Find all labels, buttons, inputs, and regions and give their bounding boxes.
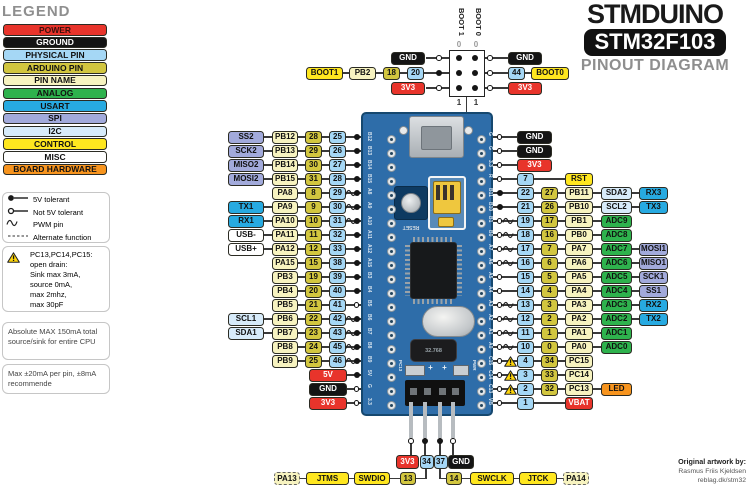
- legend-swatch-spi: SPI: [3, 113, 107, 125]
- arduino-pin: 29: [305, 145, 322, 158]
- pin-hole: [477, 135, 486, 144]
- pin-hole: [477, 345, 486, 354]
- pin-name-PB12: PB12: [272, 131, 298, 144]
- silkscreen-label: C15: [487, 356, 492, 371]
- pin-hole-center: [480, 362, 483, 365]
- pin-hole-center: [390, 390, 393, 393]
- pin-name-PA13: PA13: [274, 472, 300, 485]
- credit-line: Original artwork by:: [626, 457, 746, 467]
- silkscreen-label: A15: [366, 258, 371, 273]
- physical-pin: 12: [517, 313, 534, 326]
- power-pin-GND: GND: [391, 52, 425, 65]
- silkscreen-label: A12: [366, 244, 371, 259]
- silkscreen-label: B0: [487, 230, 492, 245]
- led-silkscreen-label: PWR: [469, 360, 477, 378]
- silkscreen-label: G: [487, 146, 492, 161]
- pin-hole-center: [390, 208, 393, 211]
- power-pin-3V3: 3V3: [396, 455, 419, 469]
- physical-pin: 27: [329, 159, 346, 172]
- arduino-pin: 24: [305, 341, 322, 354]
- brand-title: STMDUINO: [560, 1, 750, 28]
- legend-swatch-pinname: PIN NAME: [3, 75, 107, 87]
- pin-hole: [387, 359, 396, 368]
- physical-pin: 14: [517, 285, 534, 298]
- pin-hole: [387, 177, 396, 186]
- pin-hole-center: [390, 222, 393, 225]
- pin-name-PB2: PB2: [349, 67, 376, 80]
- pin-func-TX2: TX2: [639, 313, 668, 326]
- pin-name-PA15: PA15: [272, 257, 298, 270]
- physical-pin: 32: [329, 229, 346, 242]
- legend-swatch-hardware: BOARD HARDWARE: [3, 164, 107, 176]
- pin-name-PB11: PB11: [565, 187, 593, 200]
- pin-hole-center: [390, 264, 393, 267]
- swd-header-pin: [439, 388, 446, 395]
- silkscreen-label: G: [487, 132, 492, 147]
- silkscreen-label: B5: [366, 300, 371, 315]
- pin-func-ADC7: ADC7: [601, 243, 632, 256]
- solder-dot-hollow: [497, 386, 503, 392]
- silkscreen-label: B15: [366, 174, 371, 189]
- header-pin-leg: [409, 402, 413, 438]
- pin-func-SCL2: SCL2: [601, 201, 632, 214]
- boot-jumper-cap: [438, 217, 454, 227]
- pin-hole-center: [390, 306, 393, 309]
- physical-pin: 3: [517, 369, 534, 382]
- hollow-tolerance-icon: [6, 206, 30, 216]
- pin-hole-center: [390, 362, 393, 365]
- dashed-tolerance-icon: [6, 231, 30, 241]
- solder-dot-hollow: [436, 55, 442, 61]
- credit-line: reblag.dk/stm32: [626, 476, 746, 485]
- legend-swatch-misc: MISC: [3, 151, 107, 163]
- legend-heading: LEGEND: [2, 3, 71, 20]
- pin-hole-center: [390, 250, 393, 253]
- physical-pin: 21: [517, 201, 534, 214]
- physical-pin: 17: [517, 243, 534, 256]
- arduino-pin: 30: [305, 159, 322, 172]
- physical-pin: 38: [329, 257, 346, 270]
- pin-name-PA3: PA3: [565, 299, 593, 312]
- swd-header-pin: [410, 388, 417, 395]
- pwm-icon: [502, 314, 514, 324]
- pin-hole-center: [390, 334, 393, 337]
- pwm-icon: [502, 342, 514, 352]
- solder-dot-filled: [354, 344, 360, 350]
- legend-warning-line: open drain:: [30, 260, 106, 270]
- pin-hole: [387, 205, 396, 214]
- jumper-pin: [443, 185, 447, 200]
- solder-dot-hollow: [408, 438, 414, 444]
- legend-swatch-arduino: ARDUINO PIN: [3, 62, 107, 74]
- pin-hole: [387, 303, 396, 312]
- arduino-pin: 22: [305, 313, 322, 326]
- pin-func-TX3: TX3: [639, 201, 668, 214]
- pin-hole: [387, 345, 396, 354]
- pin-name-PB4: PB4: [272, 285, 298, 298]
- arduino-pin: 11: [305, 229, 322, 242]
- pin-hole: [477, 359, 486, 368]
- pin-hole: [477, 303, 486, 312]
- legend-swatch-analog: ANALOG: [3, 88, 107, 100]
- pin-hole: [387, 191, 396, 200]
- legend-swatch-ground: GROUND: [3, 37, 107, 49]
- physical-pin: 34: [420, 455, 434, 469]
- arduino-pin: 13: [400, 472, 416, 485]
- legend-symbol-label: Alternate function: [33, 233, 107, 243]
- pin-hole-center: [480, 250, 483, 253]
- jumper-bottom-value: 1: [454, 98, 464, 107]
- legend-swatch-power: POWER: [3, 24, 107, 36]
- power-pin-3V3: 3V3: [508, 82, 542, 95]
- physical-pin: 7: [517, 173, 534, 186]
- jumper-top-value: 0: [471, 40, 481, 49]
- pin-func-ADC4: ADC4: [601, 285, 632, 298]
- pin-hole: [477, 163, 486, 172]
- mcu-chip: [410, 242, 457, 299]
- silkscreen-label: B12: [366, 132, 371, 147]
- solder-dot-hollow: [487, 55, 493, 61]
- pin-hole-center: [480, 292, 483, 295]
- pin-func-USB-: USB-: [228, 229, 264, 242]
- physical-pin: 10: [517, 341, 534, 354]
- jtag-pin-JTMS: JTMS: [306, 472, 349, 485]
- credit-line: Rasmus Friis Kjeldsen: [626, 467, 746, 476]
- pin-name-PB7: PB7: [272, 327, 298, 340]
- pin-hole: [387, 387, 396, 396]
- solder-dot-filled: [354, 218, 360, 224]
- arduino-pin: 7: [541, 243, 558, 256]
- usb-mount-pad: [464, 126, 473, 135]
- pin-hole-center: [480, 152, 483, 155]
- legend-warning-line: source 0mA,: [30, 280, 106, 290]
- arduino-pin: 32: [541, 383, 558, 396]
- pin-hole: [387, 373, 396, 382]
- physical-pin: 13: [517, 299, 534, 312]
- arduino-pin: 15: [305, 257, 322, 270]
- pin-hole: [477, 233, 486, 242]
- silkscreen-label: C14: [487, 370, 492, 385]
- solder-dot-hollow: [497, 372, 503, 378]
- legend-symbol-label: 5V tolerant: [33, 195, 107, 205]
- silkscreen-label: A9: [366, 202, 371, 217]
- physical-pin: 39: [329, 271, 346, 284]
- silkscreen-label: A5: [487, 272, 492, 287]
- physical-pin: 37: [434, 455, 448, 469]
- header-pin-leg: [451, 402, 455, 438]
- pin-hole: [387, 275, 396, 284]
- jumper-pin-dot: [456, 55, 462, 61]
- pin-name-PB10: PB10: [565, 201, 593, 214]
- arduino-pin: 23: [305, 327, 322, 340]
- pin-hole-center: [390, 152, 393, 155]
- power-pin-3V3: 3V3: [309, 397, 347, 410]
- pin-func-RX2: RX2: [639, 299, 668, 312]
- silkscreen-label: B14: [366, 160, 371, 175]
- silkscreen-label: B11: [487, 188, 492, 203]
- arduino-pin: 14: [446, 472, 462, 485]
- physical-pin: 40: [329, 285, 346, 298]
- pin-hole-center: [480, 138, 483, 141]
- pin-hole-center: [390, 292, 393, 295]
- pin-func-TX1: TX1: [228, 201, 264, 214]
- pin-hole-center: [390, 194, 393, 197]
- pin-name-PA12: PA12: [272, 243, 298, 256]
- physical-pin: 1: [517, 397, 534, 410]
- arduino-pin: 34: [541, 355, 558, 368]
- pin-hole-center: [480, 334, 483, 337]
- solder-dot-filled: [354, 148, 360, 154]
- silkscreen-label: B3: [366, 272, 371, 287]
- wire: [416, 478, 427, 479]
- silkscreen-label: 5V: [366, 370, 371, 385]
- solder-dot-filled: [422, 438, 428, 444]
- silkscreen-label: G: [366, 384, 371, 399]
- solder-dot-filled: [354, 162, 360, 168]
- pwm-icon: [502, 244, 514, 254]
- legend-symbol-label: Not 5V tolerant: [33, 208, 107, 218]
- pin-func-USB+: USB+: [228, 243, 264, 256]
- physical-pin: 25: [329, 131, 346, 144]
- pin-func-SCK1: SCK1: [639, 271, 668, 284]
- pin-func-SCL1: SCL1: [228, 313, 264, 326]
- pwm-icon: [502, 258, 514, 268]
- silkscreen-label: A3: [487, 300, 492, 315]
- jtag-pin-SWCLK: SWCLK: [470, 472, 514, 485]
- solder-dot-filled: [354, 330, 360, 336]
- mcu-pin-strip: [457, 245, 462, 296]
- silkscreen-label: A1: [487, 328, 492, 343]
- solder-dot-filled: [354, 246, 360, 252]
- solder-dot-hollow: [436, 85, 442, 91]
- physical-pin: 45: [329, 341, 346, 354]
- pin-hole: [387, 135, 396, 144]
- pin-func-ADC9: ADC9: [601, 215, 632, 228]
- pin-hole-center: [390, 278, 393, 281]
- legend-warning-line: max 2mhz,: [30, 290, 106, 300]
- pin-hole-center: [480, 194, 483, 197]
- silkscreen-label: B10: [487, 202, 492, 217]
- jumper-pin-dot: [456, 70, 462, 76]
- pin-hole: [387, 219, 396, 228]
- pin-hole-center: [480, 390, 483, 393]
- pin-func-RX3: RX3: [639, 187, 668, 200]
- physical-pin: 43: [329, 327, 346, 340]
- legend-warning-line: max 30pF: [30, 300, 106, 310]
- arduino-pin: 20: [305, 285, 322, 298]
- pin-name-PA11: PA11: [272, 229, 298, 242]
- pin-hole: [477, 261, 486, 270]
- pin-func-ADC3: ADC3: [601, 299, 632, 312]
- pin-name-PB14: PB14: [272, 159, 298, 172]
- pin-hole: [387, 247, 396, 256]
- pin-name-PA5: PA5: [565, 271, 593, 284]
- solder-dot-hollow: [497, 162, 503, 168]
- pwm-icon: [502, 216, 514, 226]
- artwork-credit: Original artwork by: Rasmus Friis Kjelds…: [626, 457, 746, 485]
- pwm-icon: [502, 328, 514, 338]
- pin-hole-center: [480, 180, 483, 183]
- arduino-pin: 31: [305, 173, 322, 186]
- open-drain-warning-icon: [504, 384, 517, 395]
- pin-hole-center: [480, 306, 483, 309]
- pin-name-PB13: PB13: [272, 145, 298, 158]
- arduino-pin: 28: [305, 131, 322, 144]
- arduino-pin: 8: [305, 187, 322, 200]
- solder-dot-hollow: [497, 274, 503, 280]
- jtag-pin-JTCK: JTCK: [519, 472, 557, 485]
- pin-name-PA9: PA9: [272, 201, 298, 214]
- pin-hole-center: [390, 180, 393, 183]
- pin-hole: [387, 233, 396, 242]
- legend-swatch-physical: PHYSICAL PIN: [3, 49, 107, 61]
- pin-name-PB15: PB15: [272, 173, 298, 186]
- pin-hole-center: [480, 404, 483, 407]
- pin-name-PB9: PB9: [272, 355, 298, 368]
- solder-dot-filled: [354, 288, 360, 294]
- silkscreen-label: A4: [487, 286, 492, 301]
- pin-hole: [477, 387, 486, 396]
- pin-hole: [387, 331, 396, 340]
- arduino-pin: 16: [541, 229, 558, 242]
- power-pin-3V3: 3V3: [391, 82, 425, 95]
- solder-dot-filled: [354, 232, 360, 238]
- pin-func-ADC2: ADC2: [601, 313, 632, 326]
- arduino-pin: 18: [383, 67, 400, 80]
- silkscreen-label: B8: [366, 342, 371, 357]
- pin-hole-center: [480, 264, 483, 267]
- arduino-pin: 25: [305, 355, 322, 368]
- silkscreen-label: 3.3: [487, 160, 492, 175]
- header-pin-leg: [423, 402, 427, 438]
- header-pin-leg: [438, 402, 442, 438]
- open-drain-warning-icon: [504, 356, 517, 367]
- usb-mount-pad: [399, 126, 408, 135]
- pin-hole: [387, 401, 396, 410]
- arduino-pin: 9: [305, 201, 322, 214]
- pin-hole-center: [390, 320, 393, 323]
- solder-dot-hollow: [450, 438, 456, 444]
- pin-name-PA0: PA0: [565, 341, 593, 354]
- silkscreen-label: A0: [487, 342, 492, 357]
- legend-note-max-current: Absolute MAX 150mA total source/sink for…: [2, 322, 110, 360]
- diagram-subtitle: PINOUT DIAGRAM: [560, 57, 750, 75]
- pin-name-PA1: PA1: [565, 327, 593, 340]
- reset-button: [401, 193, 421, 213]
- pin-func-SCK2: SCK2: [228, 145, 264, 158]
- pin-func-MISO2: MISO2: [228, 159, 264, 172]
- jumper-pin: [436, 185, 440, 200]
- pin-func-MISO1: MISO1: [639, 257, 668, 270]
- legend-symbol-label: PWM pin: [33, 220, 107, 230]
- pin-name-PB5: PB5: [272, 299, 298, 312]
- physical-pin: 16: [517, 257, 534, 270]
- pin-hole-center: [480, 320, 483, 323]
- pin-hole-center: [390, 404, 393, 407]
- physical-pin: 46: [329, 355, 346, 368]
- pin-name-PB0: PB0: [565, 229, 593, 242]
- bluepill-board: RESET32.768++PC13PWRB12GB13GB143.3B15RA8…: [361, 112, 493, 416]
- pin-hole-center: [390, 138, 393, 141]
- pin-hole: [477, 191, 486, 200]
- arduino-pin: 27: [541, 187, 558, 200]
- jumper-bottom-value: 1: [471, 98, 481, 107]
- physical-pin: 33: [329, 243, 346, 256]
- pinout-diagram: LEGEND POWERGROUNDPHYSICAL PINARDUINO PI…: [0, 0, 750, 486]
- solder-dot-hollow: [354, 400, 360, 406]
- pin-hole: [477, 247, 486, 256]
- solder-dot-filled: [354, 274, 360, 280]
- pin-func-RX1: RX1: [228, 215, 264, 228]
- pin-func-ADC8: ADC8: [601, 229, 632, 242]
- solder-dot-hollow: [354, 386, 360, 392]
- pwm-icon: [502, 300, 514, 310]
- power-pin-5V: 5V: [309, 369, 347, 382]
- pin-name-PA2: PA2: [565, 313, 593, 326]
- legend-note-per-pin: Max ±20mA per pin, ±8mA recommende: [2, 364, 110, 394]
- led-component: [453, 365, 469, 376]
- arduino-pin: 2: [541, 313, 558, 326]
- silkscreen-label: B13: [366, 146, 371, 161]
- pin-name-PB8: PB8: [272, 341, 298, 354]
- pin-hole: [477, 219, 486, 228]
- jumper-top-value: 0: [454, 40, 464, 49]
- solder-dot-filled: [497, 190, 503, 196]
- usb-connector-inner: [421, 126, 452, 150]
- pwm-tolerance-icon: [6, 218, 18, 228]
- pin-hole: [477, 331, 486, 340]
- pin-hole: [477, 205, 486, 214]
- physical-pin: 29: [329, 187, 346, 200]
- silkscreen-label: B6: [366, 314, 371, 329]
- physical-pin: 30: [329, 201, 346, 214]
- arduino-pin: 10: [305, 215, 322, 228]
- silkscreen-label: B9: [366, 356, 371, 371]
- pin-name-PA14: PA14: [563, 472, 589, 485]
- title-block: STMDUINO STM32F103 PINOUT DIAGRAM: [560, 1, 750, 75]
- legend-warning-line: PC13,PC14,PC15:: [30, 250, 106, 260]
- pin-name-PA4: PA4: [565, 285, 593, 298]
- pin-hole-center: [480, 348, 483, 351]
- silkscreen-label: B1: [487, 216, 492, 231]
- physical-pin: 18: [517, 229, 534, 242]
- boot0-label: BOOT0: [531, 67, 569, 80]
- solder-dot-filled: [354, 176, 360, 182]
- pin-hole: [477, 289, 486, 298]
- silkscreen-label: A2: [487, 314, 492, 329]
- jumper-pin-dot: [472, 85, 478, 91]
- pin-hole: [477, 401, 486, 410]
- pin-name-PA7: PA7: [565, 243, 593, 256]
- pin-hole: [477, 177, 486, 186]
- physical-pin: 4: [517, 355, 534, 368]
- silkscreen-label: A7: [487, 244, 492, 259]
- solder-dot-filled: [354, 260, 360, 266]
- physical-pin: 19: [517, 215, 534, 228]
- filled-tolerance-icon: [6, 193, 30, 203]
- solder-dot-filled: [354, 372, 360, 378]
- solder-dot-filled: [354, 316, 360, 322]
- physical-pin: 15: [517, 271, 534, 284]
- pin-hole: [477, 317, 486, 326]
- pin-name-PC13: PC13: [565, 383, 593, 396]
- solder-dot-filled: [354, 358, 360, 364]
- pin-name-PC15: PC15: [565, 355, 593, 368]
- silkscreen-label: B7: [366, 328, 371, 343]
- boot1-label: BOOT1: [306, 67, 343, 80]
- pin-hole-center: [390, 236, 393, 239]
- pin-func-ADC0: ADC0: [601, 341, 632, 354]
